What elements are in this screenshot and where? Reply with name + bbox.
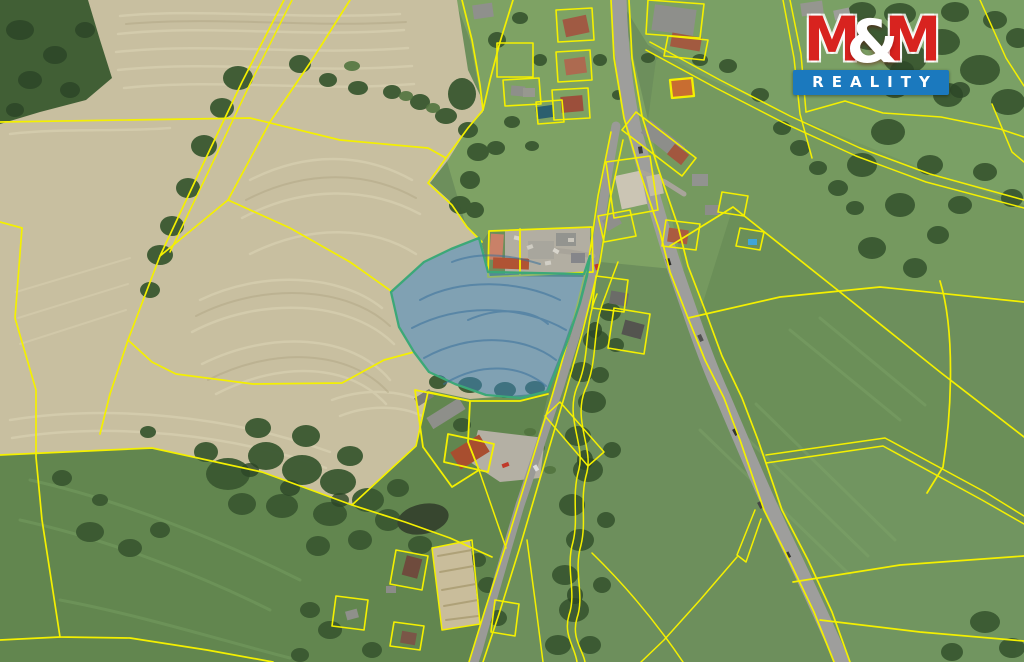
building (560, 95, 583, 113)
logo-mm: M&M (786, 12, 956, 69)
mm-reality-logo: M&M REALITY (786, 12, 956, 95)
secondary-highlight-parcel[interactable] (670, 78, 694, 98)
yard-clutter (568, 238, 574, 242)
aerial-map[interactable] (0, 0, 1024, 662)
swimming-pool (748, 239, 757, 245)
map-stage: M&M REALITY (0, 0, 1024, 662)
building (400, 631, 417, 645)
building (692, 174, 708, 186)
building (523, 88, 535, 97)
swimming-pool (535, 105, 554, 119)
logo-ampersand: & (846, 14, 895, 71)
building (564, 57, 587, 76)
building (571, 253, 585, 263)
building (528, 241, 554, 259)
building (472, 3, 494, 20)
building (705, 205, 719, 215)
building (386, 586, 396, 593)
